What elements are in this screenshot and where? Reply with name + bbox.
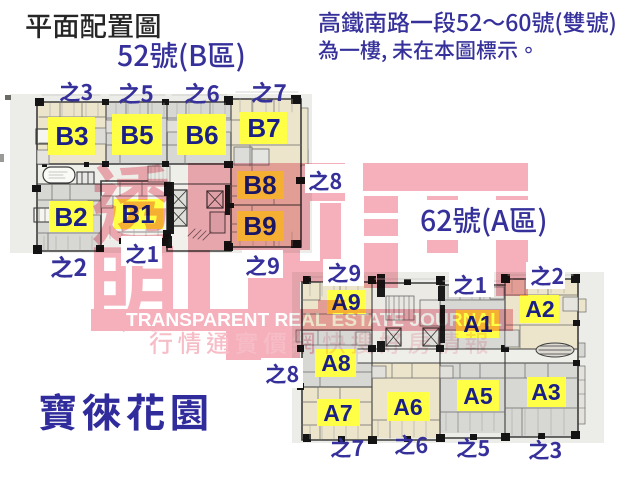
- svg-text:B7: B7: [247, 113, 280, 143]
- svg-text:A5: A5: [463, 383, 493, 409]
- svg-text:A8: A8: [321, 350, 351, 376]
- svg-text:A3: A3: [531, 379, 560, 405]
- svg-text:B5: B5: [120, 120, 153, 150]
- svg-text:A7: A7: [323, 400, 352, 426]
- svg-text:B6: B6: [185, 120, 218, 150]
- svg-text:TRANSPARENT REAL ESTATE JOU: TRANSPARENT REAL ESTATE JOURNAL: [126, 309, 502, 330]
- svg-text:B2: B2: [54, 202, 87, 232]
- svg-text:B3: B3: [55, 121, 88, 151]
- svg-text:A6: A6: [393, 394, 422, 420]
- svg-text:A2: A2: [525, 296, 554, 322]
